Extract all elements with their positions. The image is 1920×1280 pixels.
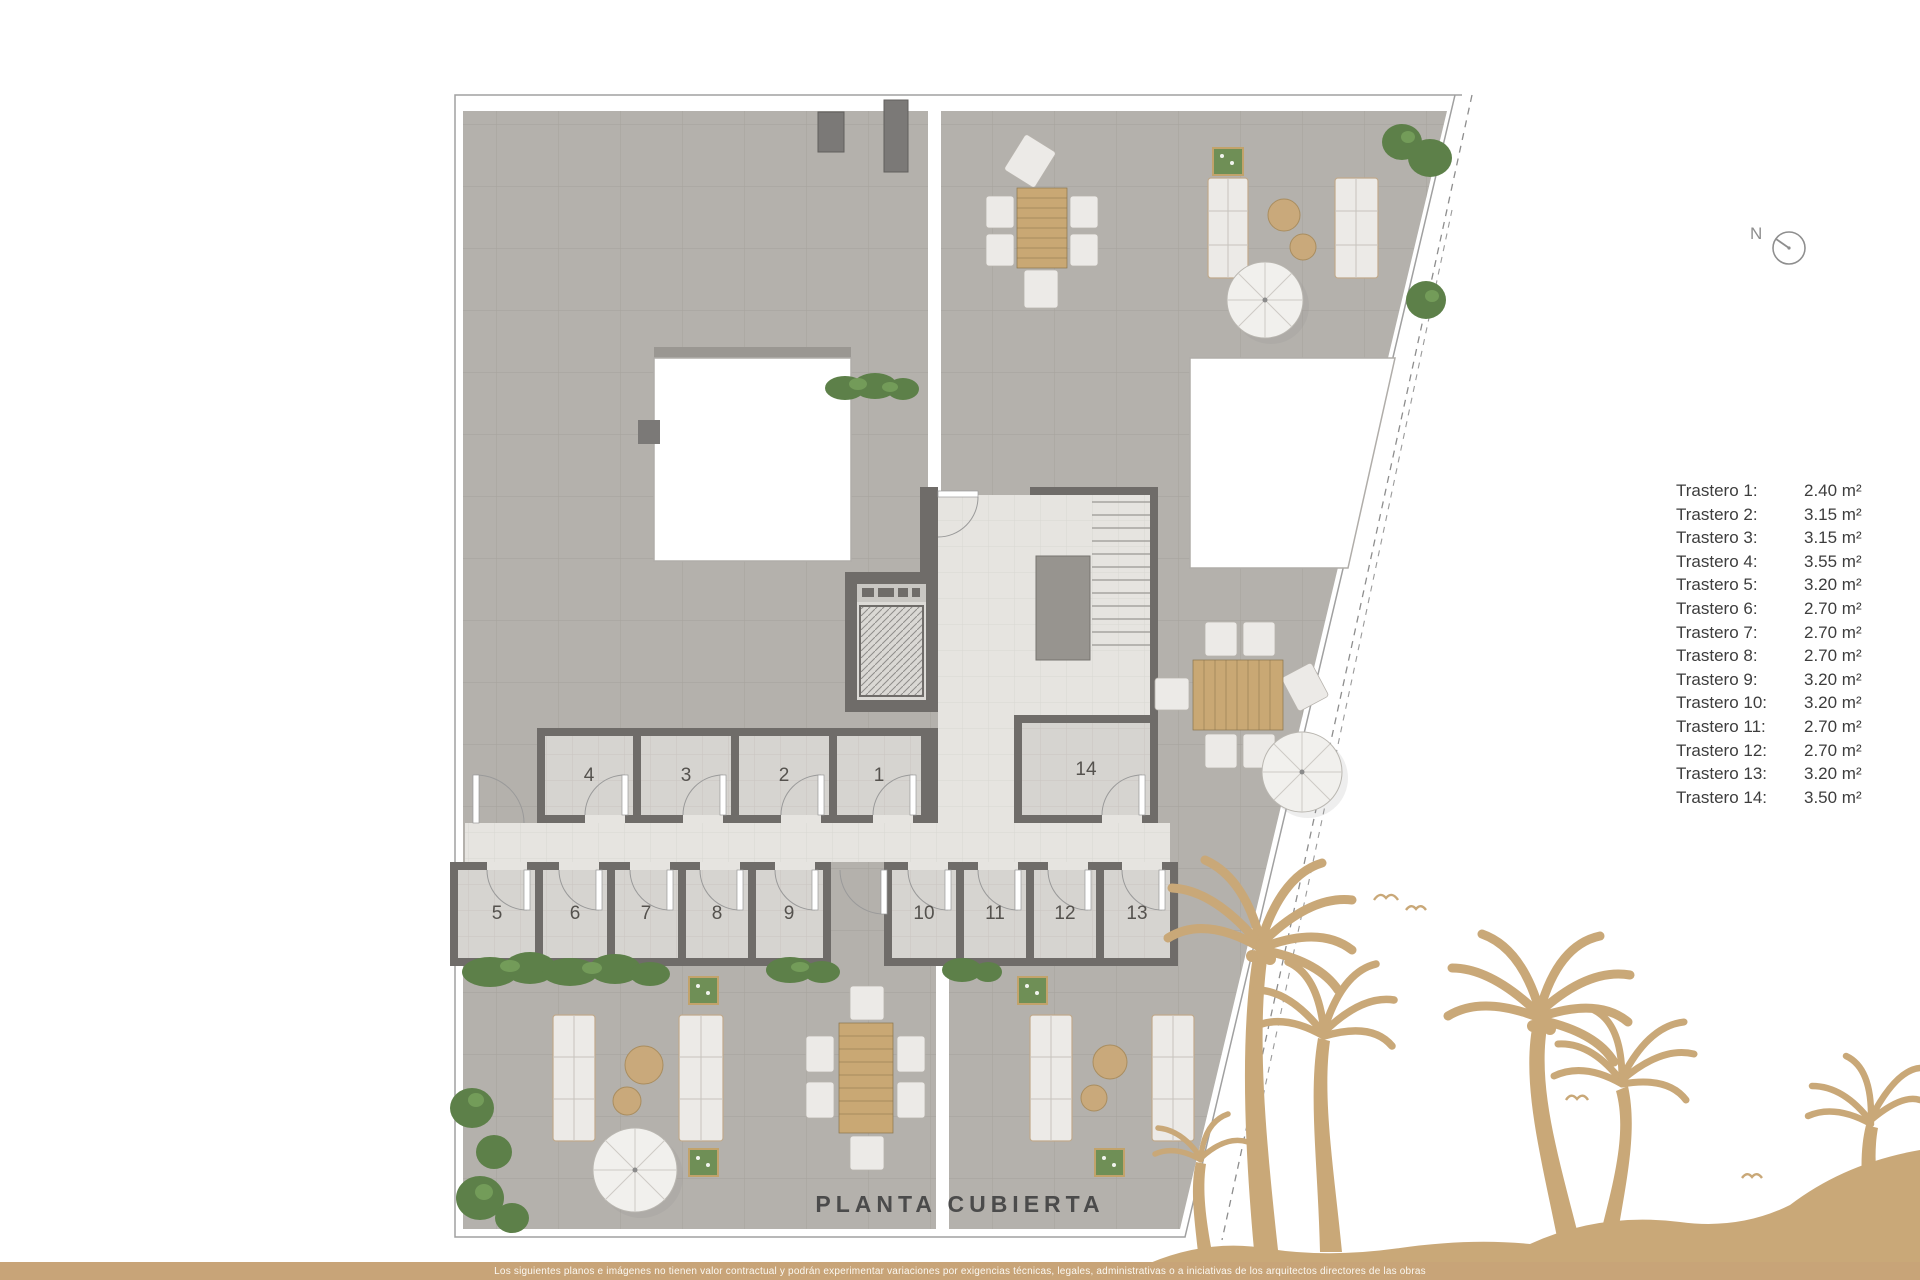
legend-row: Trastero 13:3.20 m²: [1676, 762, 1862, 786]
legend-area: 3.15 m²: [1804, 503, 1862, 527]
legend-row: Trastero 8:2.70 m²: [1676, 644, 1862, 668]
legend-area: 3.20 m²: [1804, 668, 1862, 692]
legend-area: 2.70 m²: [1804, 644, 1862, 668]
storage-legend: Trastero 1:2.40 m² Trastero 2:3.15 m² Tr…: [1676, 479, 1862, 809]
room-label-13: 13: [1126, 903, 1147, 925]
legend-area: 3.20 m²: [1804, 573, 1862, 597]
legend-label: Trastero 14:: [1676, 786, 1804, 810]
legend-row: Trastero 9:3.20 m²: [1676, 668, 1862, 692]
legend-area: 3.50 m²: [1804, 786, 1862, 810]
legend-label: Trastero 2:: [1676, 503, 1804, 527]
room-label-10: 10: [913, 903, 934, 925]
footer-disclaimer: Los siguientes planos e imágenes no tien…: [494, 1266, 1426, 1277]
legend-label: Trastero 5:: [1676, 573, 1804, 597]
bird-icon: [1374, 895, 1762, 1178]
legend-area: 2.40 m²: [1804, 479, 1862, 503]
room-label-1: 1: [874, 765, 885, 787]
room-label-11: 11: [985, 903, 1005, 925]
legend-area: 3.55 m²: [1804, 550, 1862, 574]
room-label-8: 8: [712, 903, 723, 925]
legend-area: 3.15 m²: [1804, 526, 1862, 550]
legend-label: Trastero 3:: [1676, 526, 1804, 550]
legend-label: Trastero 6:: [1676, 597, 1804, 621]
room-label-14: 14: [1075, 759, 1096, 781]
legend-label: Trastero 4:: [1676, 550, 1804, 574]
legend-label: Trastero 13:: [1676, 762, 1804, 786]
planter-icon: [1213, 148, 1243, 175]
legend-row: Trastero 10:3.20 m²: [1676, 691, 1862, 715]
chimney-small: [818, 112, 844, 152]
page-title: PLANTA CUBIERTA: [0, 1191, 1920, 1218]
page: 1 2 3 4 5 6 7 8 9 10 11 12 13 14 N Trast…: [0, 0, 1920, 1280]
room-label-9: 9: [784, 903, 795, 925]
legend-row: Trastero 1:2.40 m²: [1676, 479, 1862, 503]
legend-label: Trastero 11:: [1676, 715, 1804, 739]
legend-row: Trastero 5:3.20 m²: [1676, 573, 1862, 597]
compass-n-label: N: [1750, 224, 1762, 244]
room-label-7: 7: [641, 903, 652, 925]
legend-area: 2.70 m²: [1804, 621, 1862, 645]
legend-area: 2.70 m²: [1804, 597, 1862, 621]
compass-container: N: [1742, 216, 1822, 276]
legend-area: 3.20 m²: [1804, 691, 1862, 715]
legend-area: 2.70 m²: [1804, 715, 1862, 739]
legend-label: Trastero 1:: [1676, 479, 1804, 503]
divider-wall-top: [928, 103, 941, 495]
legend-label: Trastero 9:: [1676, 668, 1804, 692]
legend-row: Trastero 11:2.70 m²: [1676, 715, 1862, 739]
legend-label: Trastero 12:: [1676, 739, 1804, 763]
legend-row: Trastero 14:3.50 m²: [1676, 786, 1862, 810]
legend-label: Trastero 8:: [1676, 644, 1804, 668]
legend-row: Trastero 3:3.15 m²: [1676, 526, 1862, 550]
vent-block: [638, 420, 660, 444]
legend-row: Trastero 6:2.70 m²: [1676, 597, 1862, 621]
elevator-icon: [845, 572, 938, 712]
room-label-4: 4: [584, 765, 595, 787]
room-label-2: 2: [779, 765, 790, 787]
legend-row: Trastero 7:2.70 m²: [1676, 621, 1862, 645]
footer-bar: Los siguientes planos e imágenes no tien…: [0, 1262, 1920, 1280]
legend-row: Trastero 4:3.55 m²: [1676, 550, 1862, 574]
south-passage: [831, 862, 884, 966]
roof-void-left: [638, 347, 851, 561]
legend-area: 3.20 m²: [1804, 762, 1862, 786]
room-label-3: 3: [681, 765, 692, 787]
roof-void-right: [1190, 358, 1395, 568]
legend-row: Trastero 12:2.70 m²: [1676, 739, 1862, 763]
legend-label: Trastero 7:: [1676, 621, 1804, 645]
legend-label: Trastero 10:: [1676, 691, 1804, 715]
room-label-6: 6: [570, 903, 581, 925]
legend-area: 2.70 m²: [1804, 739, 1862, 763]
room-label-5: 5: [492, 903, 503, 925]
legend-row: Trastero 2:3.15 m²: [1676, 503, 1862, 527]
floor-plan-svg: [0, 0, 1920, 1280]
chimney-tall: [884, 100, 908, 172]
room-label-12: 12: [1054, 903, 1075, 925]
